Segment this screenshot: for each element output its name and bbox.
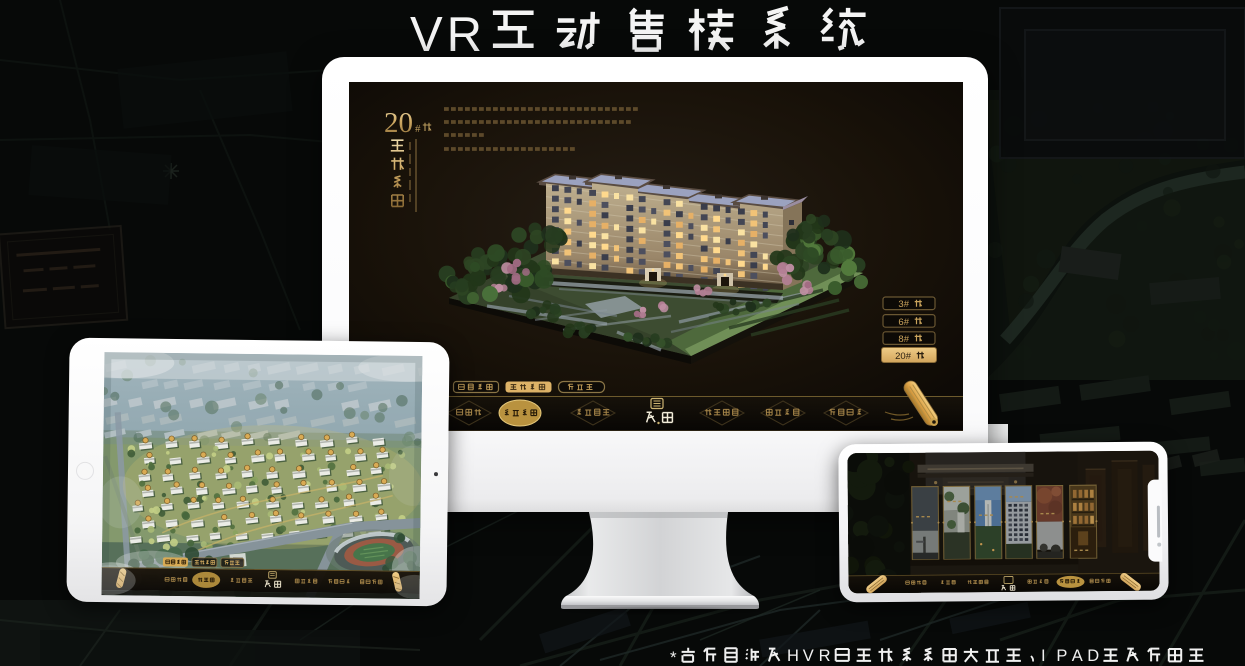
svg-text:I: I xyxy=(1041,647,1046,665)
svg-text:20: 20 xyxy=(384,107,413,139)
svg-text:6#: 6# xyxy=(898,317,909,328)
svg-text:D: D xyxy=(1087,647,1099,665)
svg-text:20#: 20# xyxy=(895,351,912,362)
svg-text:P: P xyxy=(1056,647,1067,665)
svg-text:R: R xyxy=(819,647,831,665)
svg-text:3#: 3# xyxy=(898,299,909,310)
svg-text:*: * xyxy=(670,648,677,666)
svg-text:V: V xyxy=(803,647,814,665)
svg-text:#: # xyxy=(415,123,421,135)
svg-text:A: A xyxy=(1072,647,1083,665)
svg-text:H: H xyxy=(787,647,799,665)
svg-text:VR: VR xyxy=(410,8,486,60)
svg-text:8#: 8# xyxy=(898,334,909,345)
